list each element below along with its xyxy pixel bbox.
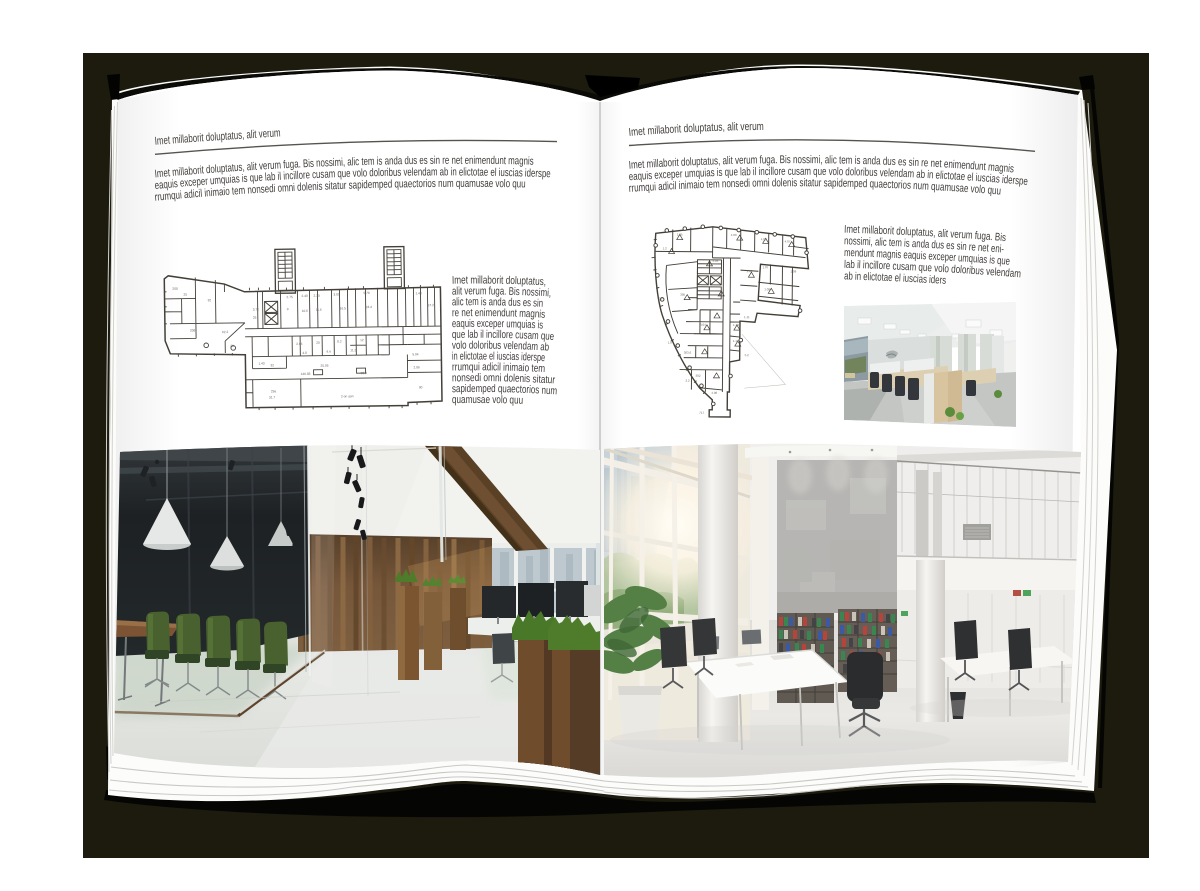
svg-text:302: 302 bbox=[695, 374, 700, 378]
svg-text:3.00: 3.00 bbox=[333, 292, 339, 296]
svg-text:26: 26 bbox=[230, 344, 234, 348]
svg-text:57.2: 57.2 bbox=[428, 303, 434, 307]
svg-text:16.5: 16.5 bbox=[340, 306, 346, 310]
svg-text:2.40: 2.40 bbox=[301, 294, 307, 298]
svg-text:5.04: 5.04 bbox=[412, 352, 418, 356]
svg-text:4.06: 4.06 bbox=[711, 391, 717, 395]
svg-text:305: 305 bbox=[680, 293, 685, 297]
svg-text:2-on aan: 2-on aan bbox=[341, 394, 354, 398]
svg-text:1.06: 1.06 bbox=[746, 269, 752, 273]
svg-text:4.09: 4.09 bbox=[731, 233, 737, 237]
svg-text:12: 12 bbox=[360, 338, 364, 342]
svg-text:1.11: 1.11 bbox=[744, 315, 750, 319]
svg-text:3.04: 3.04 bbox=[700, 323, 706, 327]
svg-text:2.30: 2.30 bbox=[313, 294, 319, 298]
svg-text:20: 20 bbox=[316, 341, 320, 345]
svg-text:2.0: 2.0 bbox=[658, 296, 663, 300]
svg-text:2.2: 2.2 bbox=[685, 379, 690, 383]
svg-text:1.8: 1.8 bbox=[668, 340, 673, 344]
svg-text:1.40: 1.40 bbox=[415, 291, 421, 295]
svg-text:25: 25 bbox=[253, 316, 257, 320]
svg-text:140.88: 140.88 bbox=[301, 372, 311, 376]
svg-text:208: 208 bbox=[190, 328, 196, 332]
svg-text:25.06: 25.06 bbox=[320, 364, 328, 368]
svg-text:303.6: 303.6 bbox=[684, 351, 692, 355]
svg-text:1.2: 1.2 bbox=[663, 246, 668, 250]
svg-text:10.6: 10.6 bbox=[302, 309, 308, 313]
svg-text:1.09: 1.09 bbox=[764, 287, 770, 291]
svg-text:2.96: 2.96 bbox=[296, 342, 302, 346]
svg-text:25: 25 bbox=[183, 293, 187, 297]
svg-text:quamusae volo quu: quamusae volo quu bbox=[452, 394, 523, 407]
svg-text:4.05: 4.05 bbox=[712, 259, 718, 263]
svg-text:11.2: 11.2 bbox=[350, 348, 356, 352]
svg-text:24.4: 24.4 bbox=[366, 305, 372, 309]
svg-text:4.08: 4.08 bbox=[761, 237, 767, 241]
svg-text:2.75: 2.75 bbox=[287, 295, 293, 299]
svg-text:31.7: 31.7 bbox=[269, 395, 275, 399]
svg-text:9: 9 bbox=[287, 307, 289, 311]
svg-text:62.2: 62.2 bbox=[222, 330, 228, 334]
svg-text:4.8: 4.8 bbox=[302, 351, 307, 355]
svg-text:29a: 29a bbox=[271, 389, 277, 393]
svg-text:5.2: 5.2 bbox=[745, 353, 750, 357]
svg-text:90: 90 bbox=[419, 385, 423, 389]
svg-text:5.70: 5.70 bbox=[363, 291, 369, 295]
svg-text:11.6: 11.6 bbox=[316, 308, 322, 312]
svg-text:32: 32 bbox=[270, 363, 274, 367]
svg-text:98.3: 98.3 bbox=[361, 371, 367, 375]
svg-text:32: 32 bbox=[208, 298, 212, 302]
svg-text:4.07: 4.07 bbox=[785, 239, 791, 243]
svg-text:208: 208 bbox=[172, 287, 178, 291]
svg-text:3.72: 3.72 bbox=[253, 308, 259, 312]
svg-text:1.07: 1.07 bbox=[762, 265, 768, 269]
svg-text:2.86: 2.86 bbox=[414, 365, 420, 369]
svg-text:1.08: 1.08 bbox=[790, 270, 796, 274]
svg-text:1.10: 1.10 bbox=[733, 323, 739, 327]
svg-text:8.2: 8.2 bbox=[337, 339, 342, 343]
svg-text:1.43: 1.43 bbox=[258, 361, 264, 365]
svg-text:717: 717 bbox=[699, 411, 704, 415]
svg-text:1.05: 1.05 bbox=[677, 233, 683, 237]
svg-text:1.12: 1.12 bbox=[733, 339, 739, 343]
svg-text:4.4: 4.4 bbox=[326, 350, 331, 354]
